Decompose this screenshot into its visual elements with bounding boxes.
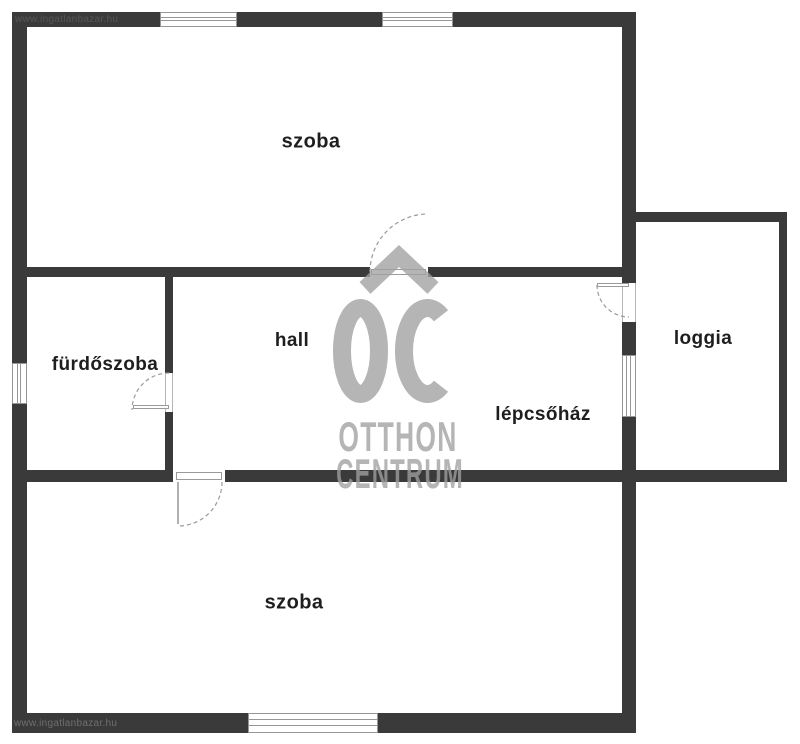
room-label-loggia: loggia — [674, 328, 732, 350]
wall-right-segment-1 — [622, 12, 636, 283]
wall-right-segment-2 — [622, 322, 636, 355]
window-bathroom-left — [12, 363, 27, 404]
wall-loggia-top — [636, 212, 787, 222]
room-label-lepcsohaz: lépcsőház — [495, 404, 590, 426]
wall-top-segment-3 — [453, 12, 636, 27]
window-hall-loggia — [622, 355, 636, 417]
window-bottom — [248, 713, 378, 733]
window-top-1 — [160, 12, 237, 27]
wall-bottom-segment-2 — [378, 713, 636, 733]
door-leaf-bathroom — [133, 405, 169, 409]
room-label-szoba-bottom: szoba — [265, 592, 324, 615]
logo-word-centrum: CENTRUM — [336, 450, 464, 498]
door-panel-szoba-top — [371, 269, 426, 275]
room-label-szoba-top: szoba — [282, 131, 341, 154]
window-top-2 — [382, 12, 453, 27]
door-opening-loggia — [622, 283, 636, 322]
wall-top-segment-2 — [237, 12, 382, 27]
wall-hall-szoba2-segment-2 — [225, 470, 787, 482]
wall-left-segment-2 — [12, 404, 27, 733]
site-url-watermark-bottom: www.ingatlanbazar.hu — [14, 718, 117, 729]
floorplan: szoba fürdőszoba hall lépcsőház loggia s… — [0, 0, 800, 744]
wall-bathroom-segment-2 — [165, 412, 173, 470]
wall-right-segment-3 — [622, 417, 636, 733]
door-leaf-loggia — [597, 283, 629, 287]
wall-hall-szoba2-segment-1 — [27, 470, 173, 482]
wall-loggia-right — [779, 212, 787, 482]
wall-bathroom-segment-1 — [165, 277, 173, 373]
door-panel-szoba-bottom — [176, 472, 222, 480]
room-label-hall: hall — [275, 330, 309, 352]
logo-letter-c — [404, 308, 441, 394]
logo-letter-o — [342, 308, 379, 394]
room-label-furdoszoba: fürdőszoba — [52, 354, 158, 376]
wall-left-segment-1 — [12, 12, 27, 363]
door-arc-szoba-top — [370, 214, 428, 272]
wall-szoba-hall-segment-2 — [428, 267, 622, 277]
door-arc-szoba-bottom — [178, 482, 222, 526]
site-url-watermark-top: www.ingatlanbazar.hu — [15, 14, 118, 25]
wall-szoba-hall-segment-1 — [27, 267, 370, 277]
